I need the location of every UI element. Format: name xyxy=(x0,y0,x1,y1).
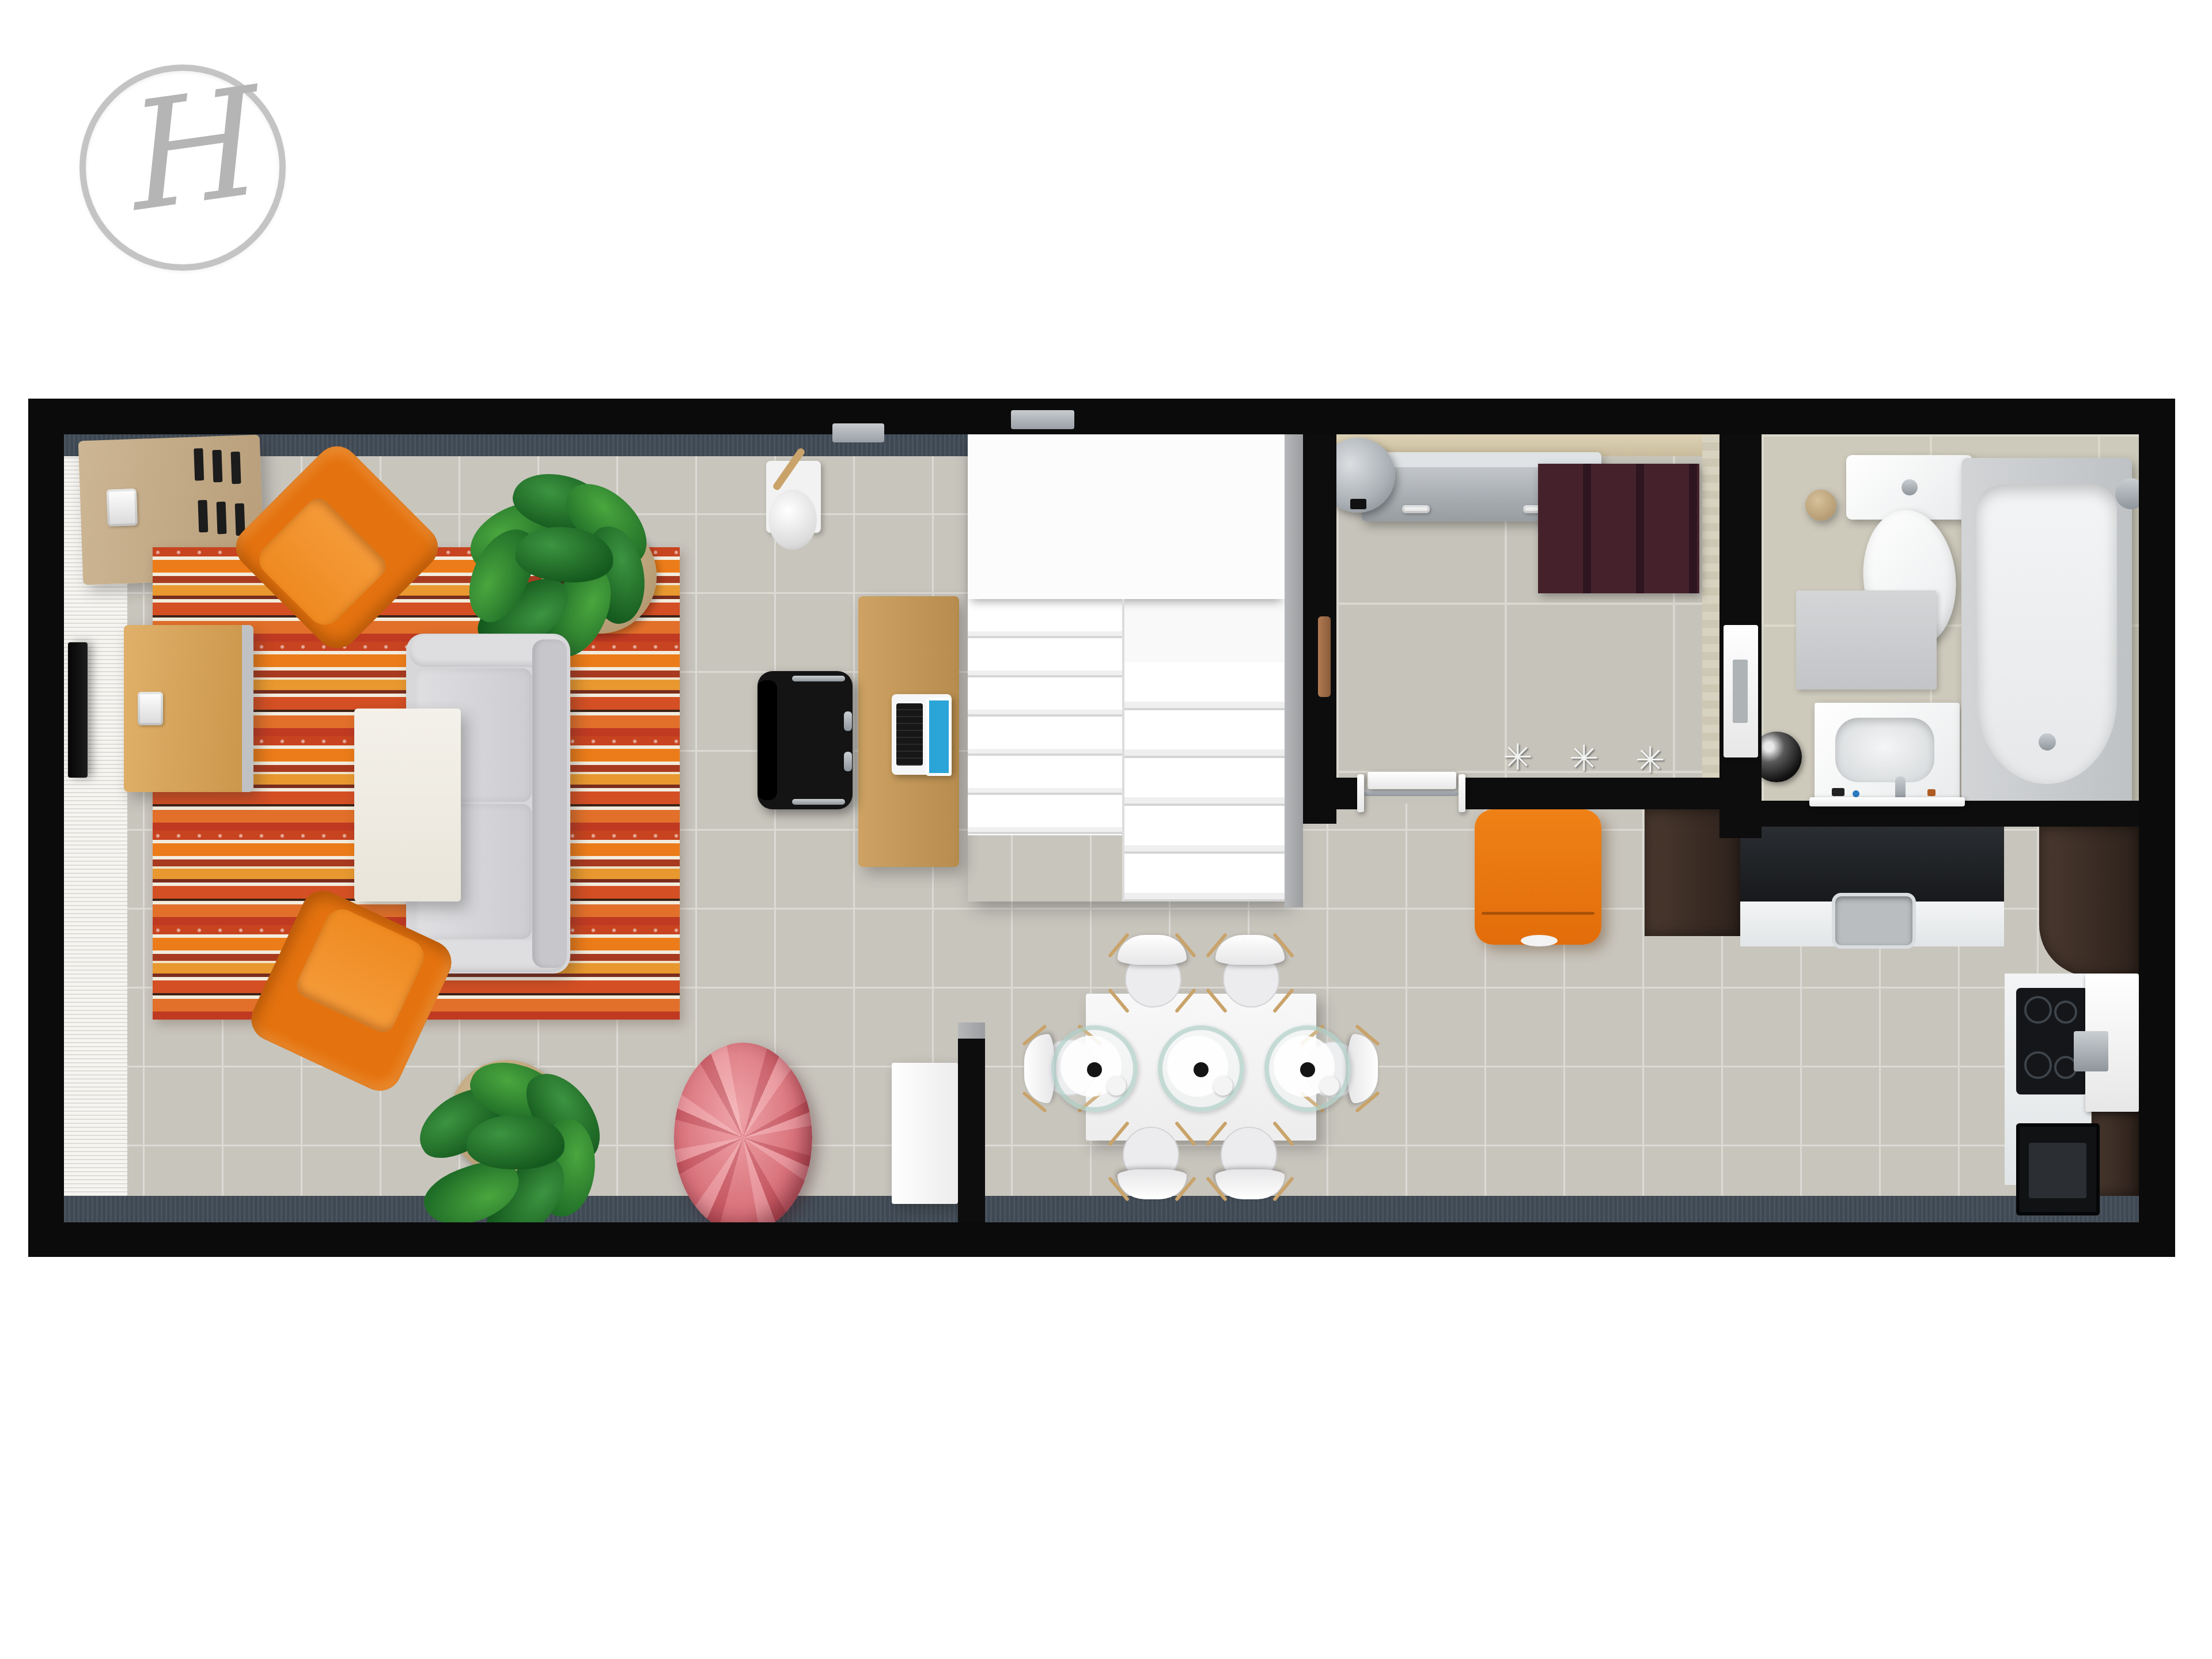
glass-place-setting xyxy=(1264,1025,1351,1112)
cabinet-handle xyxy=(107,488,138,527)
leaf xyxy=(467,1115,565,1169)
bath-mat xyxy=(1796,590,1937,690)
partition-wall-cap xyxy=(958,1022,985,1040)
floor-hook-icon: ✳ xyxy=(1503,740,1533,775)
floor-hook-icon: ✳ xyxy=(1569,741,1599,777)
brand-monogram: H xyxy=(73,42,291,260)
door-jamb xyxy=(1459,774,1465,812)
dining-chair xyxy=(1207,930,1293,1017)
cabinet-handle xyxy=(138,692,163,725)
glass-place-setting xyxy=(1158,1025,1244,1112)
bathroom-door xyxy=(1724,625,1758,757)
pink-pouf xyxy=(674,1043,812,1222)
stair-side-wall xyxy=(1285,434,1303,907)
office-chair xyxy=(757,671,853,809)
door-handle xyxy=(1318,616,1331,697)
wall-tv xyxy=(68,642,88,778)
wenge-cabinet-corner xyxy=(2039,827,2139,976)
toilet-roll-holder xyxy=(1805,490,1836,521)
brand-logo: H xyxy=(79,65,286,271)
vanity-shelf xyxy=(1809,797,1965,806)
plan-interior: ✳ ✳ ✳ xyxy=(64,434,2139,1222)
floor-hook-icon: ✳ xyxy=(1635,743,1665,778)
wall-vent-icon xyxy=(1011,410,1074,429)
stair-upper-flight xyxy=(1123,599,1285,662)
wall-utility-bottom-right xyxy=(1459,778,1719,809)
extractor-handle xyxy=(2074,1031,2108,1071)
dining-chair xyxy=(1109,930,1195,1017)
coffee-table xyxy=(354,709,461,902)
wall-vent-icon xyxy=(832,423,884,442)
kitchen-sink xyxy=(1832,893,1916,949)
stair-flight-left xyxy=(968,599,1123,835)
stair-flight-right xyxy=(1123,662,1285,902)
oven xyxy=(2016,1123,2100,1215)
utility-sliding-door xyxy=(1368,772,1456,789)
wall-lamp-shade xyxy=(768,490,817,550)
floor-plan: ✳ ✳ ✳ xyxy=(28,399,2175,1257)
white-cabinet xyxy=(892,1063,958,1204)
door-threshold xyxy=(1364,790,1459,796)
staircase xyxy=(968,434,1285,902)
potted-plant-bottom xyxy=(415,1054,622,1222)
tv-bench xyxy=(124,625,253,792)
black-countertop xyxy=(1740,827,2004,902)
window-band-bottom xyxy=(64,1196,2139,1222)
washbasin-vanity xyxy=(1815,703,1960,803)
maroon-rug xyxy=(1538,464,1699,593)
partition-wall xyxy=(958,1039,985,1222)
drain-icon xyxy=(2039,733,2056,751)
laptop xyxy=(892,694,952,775)
dining-chair xyxy=(1207,1118,1293,1204)
utility-wallpaper xyxy=(1702,434,1719,804)
bathtub xyxy=(1961,458,2132,804)
glass-place-setting xyxy=(1051,1025,1138,1112)
door-jamb xyxy=(1357,774,1364,812)
orange-lounge-chair xyxy=(1475,809,1601,945)
dining-chair xyxy=(1109,1118,1195,1204)
stair-landing xyxy=(968,434,1285,599)
